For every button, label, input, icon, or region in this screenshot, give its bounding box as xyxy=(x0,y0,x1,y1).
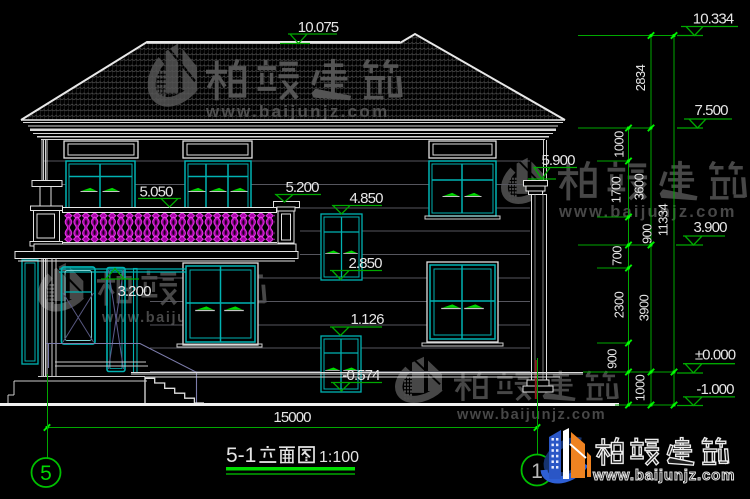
svg-text:15000: 15000 xyxy=(273,409,311,426)
svg-text:1:100: 1:100 xyxy=(319,449,359,466)
svg-text:3.200: 3.200 xyxy=(117,283,151,300)
svg-text:900: 900 xyxy=(604,349,619,369)
svg-text:www.baijunjz.com: www.baijunjz.com xyxy=(456,407,606,423)
svg-text:5.200: 5.200 xyxy=(285,179,319,196)
svg-text:2834: 2834 xyxy=(633,64,648,91)
svg-text:2.850: 2.850 xyxy=(348,255,382,272)
svg-text:1000: 1000 xyxy=(632,374,647,401)
svg-text:1.126: 1.126 xyxy=(350,311,384,328)
svg-text:www.baijunjz.com: www.baijunjz.com xyxy=(592,467,735,484)
svg-text:3.900: 3.900 xyxy=(693,219,727,236)
svg-text:3900: 3900 xyxy=(636,294,651,321)
svg-text:1000: 1000 xyxy=(611,131,626,158)
svg-text:5: 5 xyxy=(40,462,52,485)
svg-text:4.850: 4.850 xyxy=(349,190,383,207)
svg-text:5-1: 5-1 xyxy=(226,444,256,467)
svg-text:2300: 2300 xyxy=(611,291,626,318)
svg-text:11334: 11334 xyxy=(655,204,670,237)
svg-text:3600: 3600 xyxy=(631,173,646,200)
svg-text:900: 900 xyxy=(639,224,654,244)
svg-text:700: 700 xyxy=(609,246,624,266)
svg-text:-0.574: -0.574 xyxy=(342,367,380,384)
svg-text:10.334: 10.334 xyxy=(693,11,734,28)
svg-text:-1.000: -1.000 xyxy=(696,381,734,398)
svg-text:7.500: 7.500 xyxy=(694,102,728,119)
svg-text:±0.000: ±0.000 xyxy=(695,347,736,364)
svg-text:1700: 1700 xyxy=(608,176,623,203)
svg-text:5.900: 5.900 xyxy=(541,152,575,169)
